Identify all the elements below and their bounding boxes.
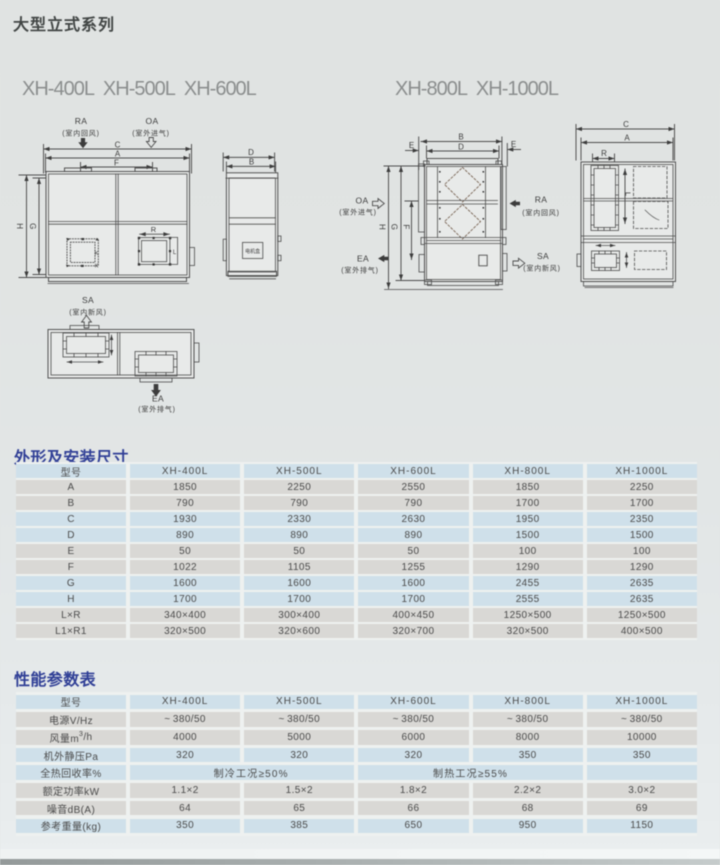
svg-text:G: G (390, 224, 399, 230)
svg-text:R: R (601, 149, 607, 158)
svg-text:EA: EA (152, 394, 164, 404)
svg-text:E: E (511, 140, 516, 149)
svg-text:A: A (624, 134, 630, 143)
svg-text:(室内回风): (室内回风) (522, 208, 559, 217)
svg-text:B: B (249, 158, 254, 167)
svg-text:G: G (28, 223, 37, 229)
svg-text:E: E (409, 141, 414, 150)
svg-text:H: H (15, 223, 24, 229)
svg-text:L: L (623, 192, 632, 196)
svg-text:R: R (151, 225, 157, 234)
svg-text:(室内回风): (室内回风) (62, 129, 99, 138)
svg-text:D: D (458, 143, 464, 152)
svg-text:(室外排气): (室外排气) (138, 405, 175, 414)
svg-text:K: K (95, 264, 99, 270)
svg-text:F: F (401, 224, 410, 229)
svg-text:(室外进气): (室外进气) (339, 208, 376, 217)
svg-text:(室内新风): (室内新风) (69, 308, 106, 317)
svg-text:RA: RA (535, 195, 547, 205)
svg-text:F: F (114, 159, 119, 168)
svg-text:RA: RA (75, 116, 87, 126)
svg-text:K: K (95, 251, 99, 257)
svg-text:OA: OA (146, 116, 159, 126)
svg-text:EA: EA (357, 254, 369, 264)
svg-text:D: D (248, 148, 254, 157)
svg-text:H: H (378, 224, 387, 230)
svg-text:B: B (458, 133, 463, 142)
svg-text:电机盒: 电机盒 (245, 248, 260, 255)
svg-text:(室内新风): (室内新风) (523, 264, 560, 273)
svg-text:(室外进气): (室外进气) (132, 129, 169, 138)
svg-text:C: C (115, 141, 121, 150)
svg-text:OA: OA (356, 196, 369, 206)
svg-text:C: C (623, 120, 629, 129)
svg-text:(室外排气): (室外排气) (341, 266, 378, 275)
svg-text:SA: SA (82, 295, 94, 305)
svg-text:SA: SA (537, 251, 549, 261)
svg-text:A: A (115, 150, 121, 159)
